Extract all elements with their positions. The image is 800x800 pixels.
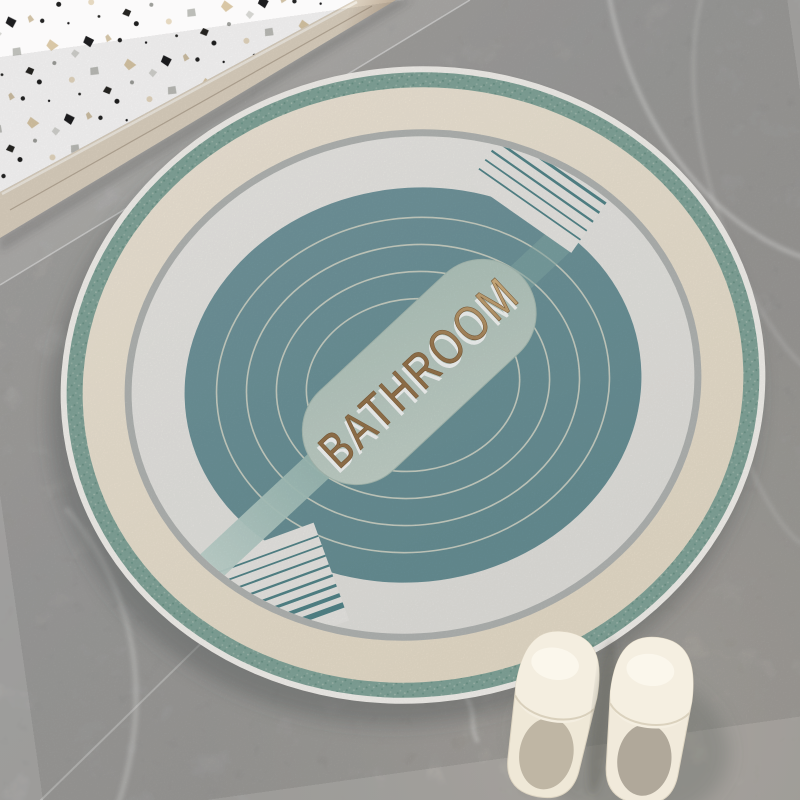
- product-photo: BATHROOM BATHROOM: [0, 0, 800, 800]
